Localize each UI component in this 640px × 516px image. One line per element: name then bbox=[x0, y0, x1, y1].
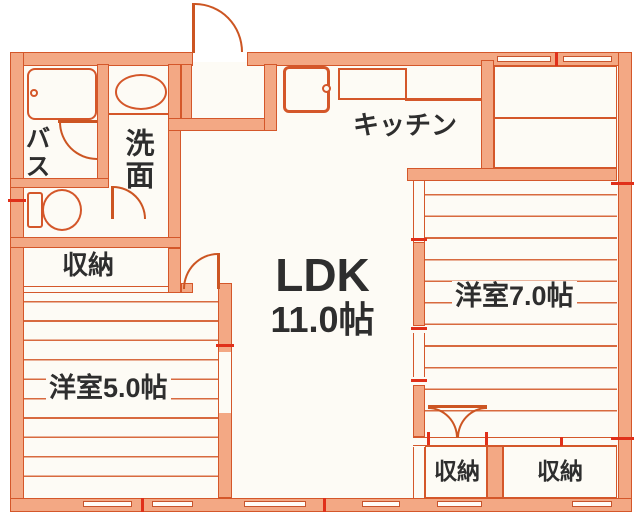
wall-segment bbox=[413, 242, 425, 326]
wall-segment bbox=[97, 64, 109, 180]
wall-segment bbox=[413, 385, 425, 437]
joint-mark bbox=[411, 379, 427, 382]
closet-shelf-line bbox=[494, 117, 617, 119]
sliding-door-w7-upper bbox=[413, 181, 425, 242]
joint-mark bbox=[411, 238, 427, 241]
window bbox=[497, 56, 551, 62]
plan-line bbox=[108, 113, 168, 115]
joint-mark bbox=[427, 432, 430, 445]
joint-mark bbox=[216, 344, 234, 347]
window bbox=[362, 501, 400, 507]
joint-mark bbox=[485, 432, 488, 445]
wall-segment bbox=[181, 64, 192, 120]
entry-door-arc bbox=[195, 3, 243, 52]
window bbox=[572, 501, 612, 507]
label-western7: 洋室7.0帖 bbox=[452, 281, 577, 312]
window bbox=[83, 501, 132, 507]
label-ldk: LDK bbox=[250, 252, 395, 298]
wall-segment bbox=[168, 118, 277, 131]
wall-segment bbox=[264, 64, 277, 131]
label-kitchen: キッチン bbox=[345, 112, 465, 138]
window bbox=[437, 501, 482, 507]
joint-mark bbox=[8, 199, 26, 202]
label-storage-left: 収納 bbox=[430, 460, 484, 483]
joint-mark bbox=[555, 52, 558, 66]
wall-segment bbox=[407, 168, 617, 181]
label-western5: 洋室5.0帖 bbox=[46, 373, 171, 404]
wall-segment bbox=[481, 60, 494, 181]
toilet-tank bbox=[27, 192, 43, 228]
kitchen-tap bbox=[322, 84, 331, 93]
wall-segment bbox=[168, 64, 181, 248]
entrance-genkan bbox=[193, 66, 264, 118]
wall-segment bbox=[10, 52, 24, 512]
label-bath: バス bbox=[23, 118, 48, 188]
window bbox=[563, 56, 612, 62]
closet-hall-face bbox=[24, 286, 168, 293]
joint-mark bbox=[560, 437, 563, 446]
wall-segment bbox=[618, 52, 632, 512]
plan-line bbox=[413, 447, 425, 498]
joint-mark bbox=[611, 437, 634, 440]
sliding-door-w7-lower bbox=[413, 333, 425, 377]
washbasin-oval bbox=[115, 74, 167, 110]
window bbox=[244, 501, 306, 507]
joint-mark bbox=[323, 498, 326, 512]
label-washroom: 洗面 bbox=[122, 117, 151, 203]
kitchen-counter bbox=[338, 68, 407, 100]
joint-mark bbox=[141, 498, 144, 512]
kitchen-counter-line bbox=[405, 98, 481, 101]
label-ldk-size: 11.0帖 bbox=[240, 302, 405, 338]
sliding-door-w5 bbox=[218, 352, 232, 413]
label-storage-hall: 収納 bbox=[56, 252, 120, 278]
joint-mark bbox=[411, 327, 427, 330]
window bbox=[152, 501, 193, 507]
wall-segment bbox=[10, 237, 181, 248]
wall-segment bbox=[168, 248, 181, 293]
label-storage-right: 収納 bbox=[532, 460, 588, 483]
closet-face-line bbox=[413, 437, 617, 446]
bathtub-drain bbox=[30, 89, 38, 97]
wall-segment bbox=[487, 446, 503, 498]
joint-mark bbox=[611, 182, 634, 185]
toilet-bowl bbox=[42, 189, 82, 231]
floorplan: LDK 11.0帖 キッチン 洋室7.0帖 洋室5.0帖 収納 収納 収納 バス… bbox=[0, 0, 640, 516]
